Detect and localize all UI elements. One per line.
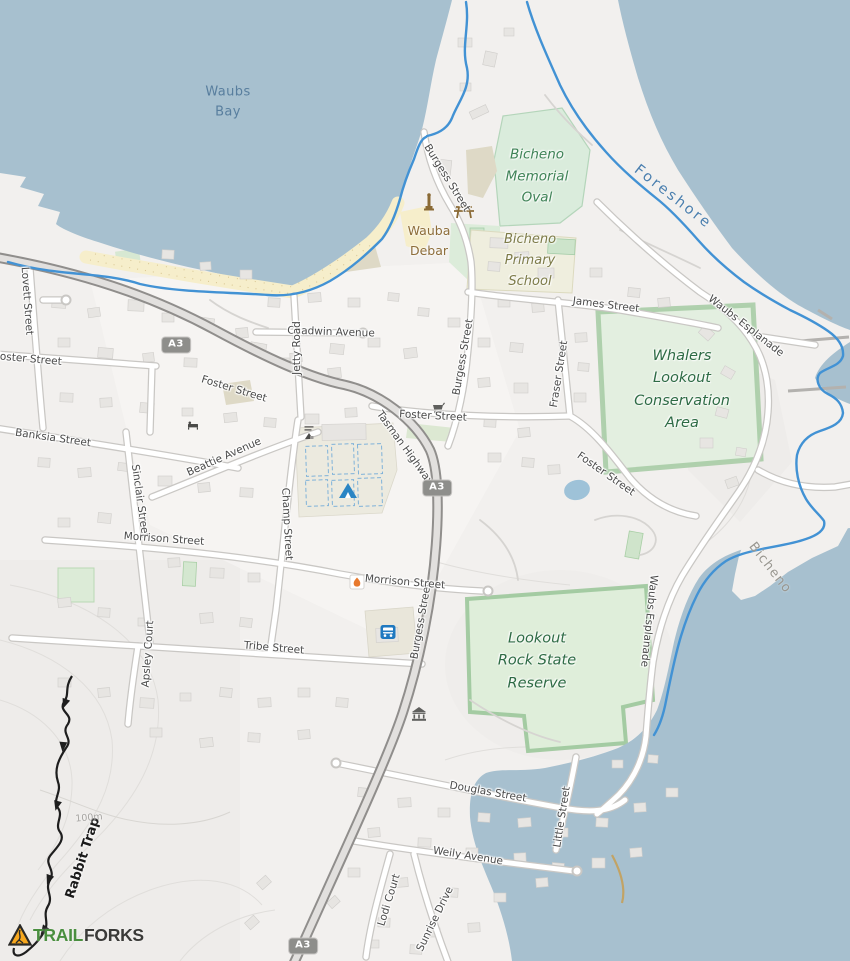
logo-text-forks: FORKS [84, 925, 144, 946]
map-canvas[interactable]: Waubs Bay Foreshore Bicheno Bicheno Memo… [0, 0, 850, 961]
trailforks-logo-icon [8, 924, 32, 946]
bus-stop-icon [381, 625, 396, 639]
route-shield-a3-north: A3 [161, 337, 191, 354]
route-shield-a3-south: A3 [288, 938, 318, 955]
fire-pit-icon [350, 575, 364, 589]
trailforks-logo[interactable]: TRAILFORKS [8, 924, 144, 946]
logo-text-trail: TRAIL [33, 925, 83, 946]
route-shield-a3-mid: A3 [422, 480, 452, 497]
